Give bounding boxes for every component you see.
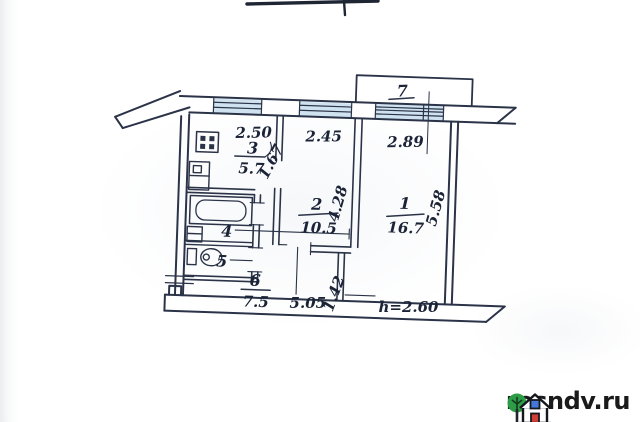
cropped-drawing-fragment [247,1,378,15]
room-2-number: 2 [310,195,323,214]
room-4-number: 4 [221,222,233,241]
window-icon [530,400,539,409]
fraction-bars [230,92,428,296]
room-6-area: 7.5 [242,292,269,311]
room-5-number: 5 [216,251,228,270]
room-1-area: 16.7 [387,218,425,237]
house-tree-icon [506,389,554,422]
floor-plan-drawing: 2.50 3 5.7 1.67 2.45 2.89 7 2 10.5 4.28 … [0,0,640,422]
watermark-logo: rosndv.ru [506,389,630,415]
dim-room2-window: 2.45 [304,127,342,145]
room-3-number: 3 [247,138,259,157]
dim-room1-window: 2.89 [386,133,424,152]
dim-room2-depth: 4.28 [324,183,352,224]
washbasin-icon [187,226,203,242]
dim-corridor-depth: 1.42 [319,273,348,313]
dim-ceiling-height: h=2.60 [378,298,439,316]
room-6-number: 6 [249,271,261,290]
dim-room1-depth: 5.58 [422,188,450,229]
door-icon [531,414,539,422]
room-7-number: 7 [396,81,408,100]
kitchen-sink-icon [189,161,210,190]
scanned-floor-plan-image: 2.50 3 5.7 1.67 2.45 2.89 7 2 10.5 4.28 … [0,0,640,422]
balcony-outline [356,75,473,105]
stove-icon [196,132,219,153]
room-1-number: 1 [399,194,411,213]
